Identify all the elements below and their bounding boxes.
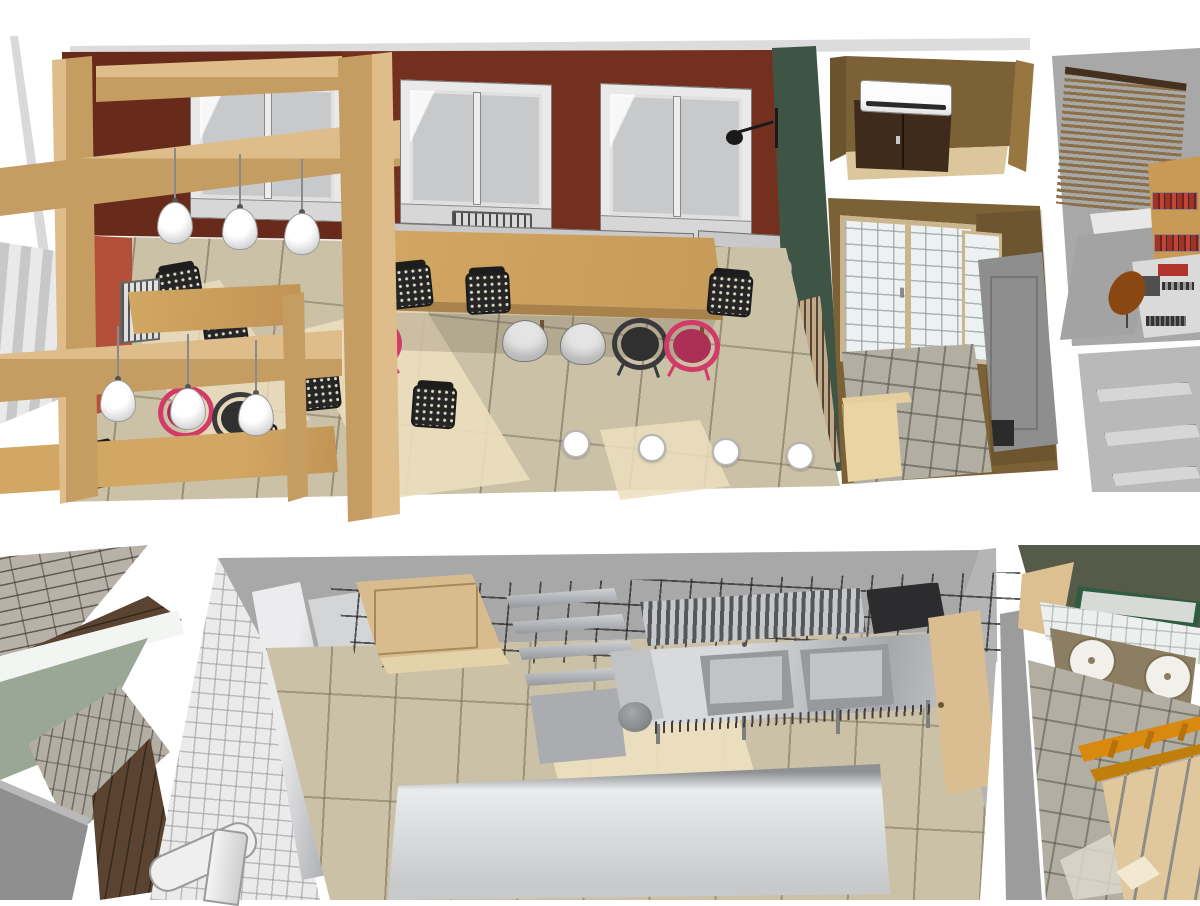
basin-drain xyxy=(1164,673,1171,680)
chair-seat xyxy=(620,326,660,362)
lamp-post xyxy=(775,108,778,148)
lamp-shade xyxy=(157,202,193,244)
tap xyxy=(742,642,747,647)
floor-spotlight xyxy=(562,430,590,458)
office-chair-brown xyxy=(1108,268,1148,322)
chair-black-mesh xyxy=(706,272,753,318)
lamp-cable xyxy=(117,326,119,382)
pendant-lamp xyxy=(284,159,320,255)
basin-inner xyxy=(810,650,882,700)
lamp-shade xyxy=(238,394,274,436)
lamp-cable xyxy=(174,148,176,204)
basin-inner xyxy=(710,656,782,704)
render-canvas xyxy=(0,0,1200,900)
hall-left-wall xyxy=(830,54,848,162)
lamp-head xyxy=(726,130,743,145)
door-handle xyxy=(900,287,904,297)
floor-spotlight xyxy=(712,438,740,466)
floor-spotlight xyxy=(638,434,666,462)
tap xyxy=(842,636,847,641)
pendant-lamp xyxy=(170,334,206,430)
red-display-panel xyxy=(1158,264,1188,276)
timber-post xyxy=(338,52,400,522)
timber-post xyxy=(52,56,98,504)
book-shelf-row xyxy=(1152,192,1198,210)
chair-leg xyxy=(1126,314,1128,328)
button-row xyxy=(1162,282,1194,290)
chair-seat xyxy=(1101,265,1153,322)
half-wall-panel xyxy=(842,400,906,482)
lamp-cable xyxy=(187,334,189,390)
pendant-lamp xyxy=(238,340,274,436)
door-knob xyxy=(896,136,900,144)
lower-view xyxy=(0,543,1200,900)
window-mullion xyxy=(473,92,481,205)
foreground-counter-center xyxy=(388,764,890,900)
basin-drain xyxy=(1088,657,1095,664)
pendant-lamp xyxy=(222,154,258,250)
lamp-cable xyxy=(301,159,303,215)
keyboard xyxy=(1146,316,1186,326)
black-wall-lamp xyxy=(726,108,778,150)
window-sill xyxy=(191,198,343,221)
pendant-lamp xyxy=(100,326,136,422)
chair-black-mesh xyxy=(465,271,511,315)
chair-black-mesh xyxy=(411,385,458,430)
sink-basin xyxy=(800,638,896,712)
window-mullion xyxy=(673,96,681,217)
pendant-lamp xyxy=(157,148,193,244)
lamp-shade xyxy=(222,208,258,250)
ac-vent-slot xyxy=(866,100,945,110)
lamp-shade xyxy=(170,388,206,430)
book-shelf-row xyxy=(1154,234,1200,252)
round-bin xyxy=(618,702,652,732)
lamp-shade xyxy=(100,380,136,422)
door-stile xyxy=(905,225,911,361)
door-panel-line xyxy=(990,276,1038,430)
door-knob xyxy=(938,702,944,708)
lamp-shade xyxy=(284,213,320,255)
lamp-cable xyxy=(239,154,241,210)
chair-seat xyxy=(671,327,712,365)
upper-view xyxy=(0,0,1200,543)
door-panel-line xyxy=(374,582,478,655)
floor-spotlight xyxy=(786,442,814,470)
window-center xyxy=(400,79,552,228)
ac-unit xyxy=(860,80,952,117)
tier-shelf-base xyxy=(530,688,626,764)
lamp-cable xyxy=(255,340,257,396)
window-right xyxy=(600,83,752,241)
